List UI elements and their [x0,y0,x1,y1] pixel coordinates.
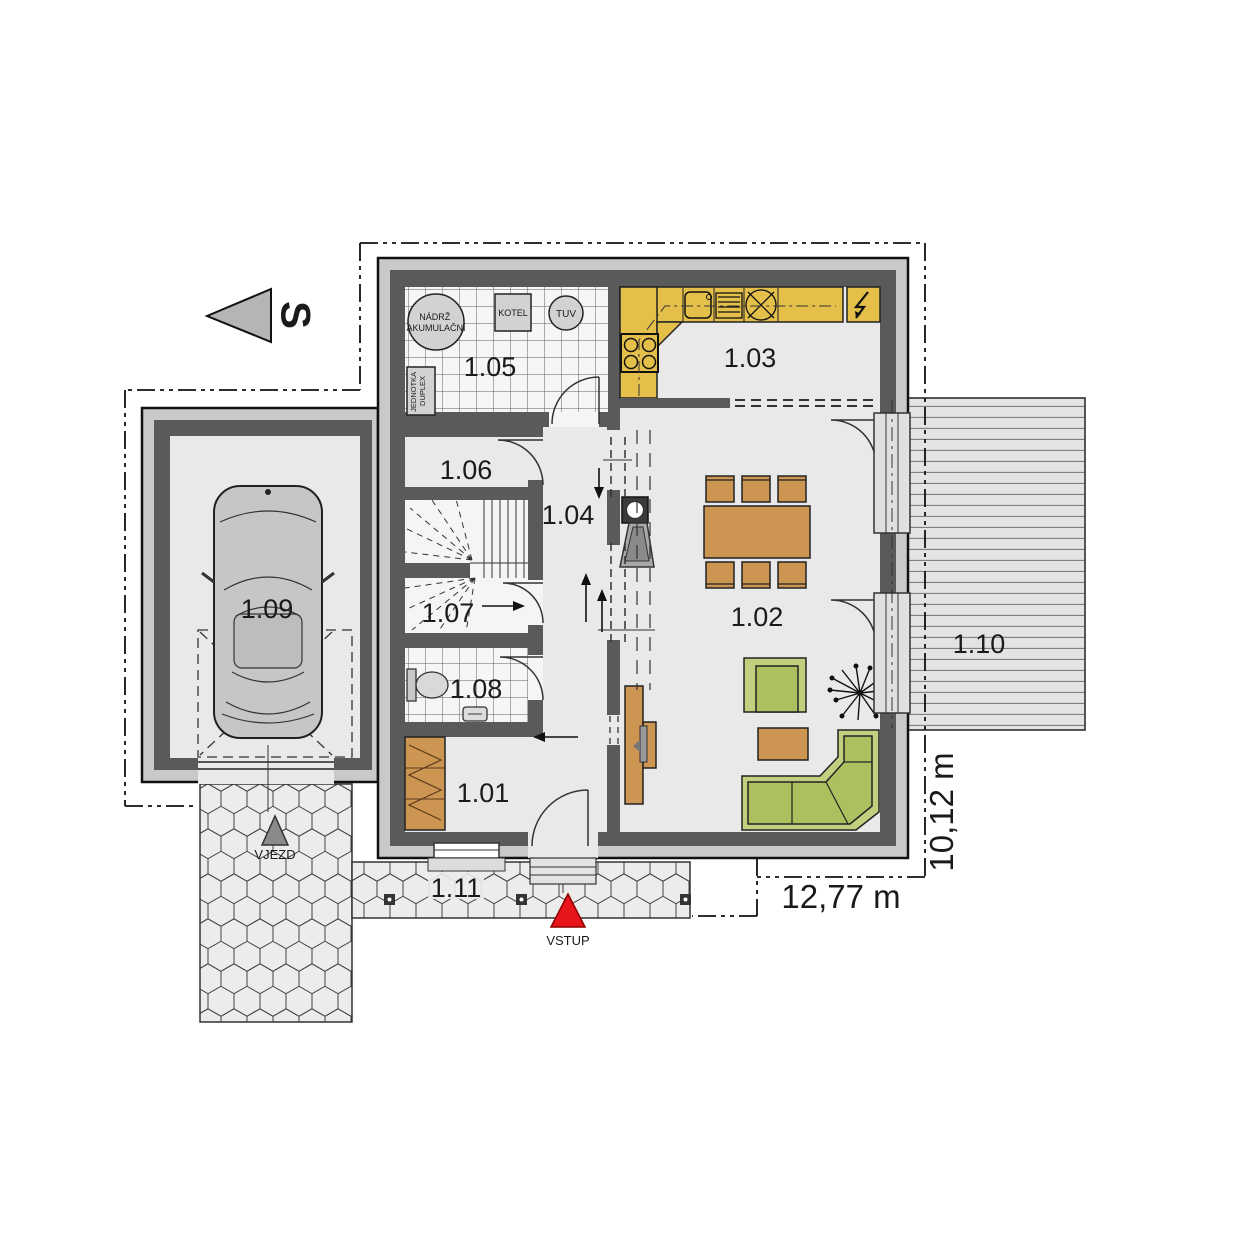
tank-label-line2: AKUMULAČNÍ [406,323,466,333]
room-label-1-05: 1.05 [464,352,517,382]
paved-walkway [352,862,691,918]
floor-plan-canvas: VJEZD [0,0,1240,1240]
armchair [744,658,806,712]
north-arrow: S [207,289,320,342]
dimension-height: 10,12 m [923,752,960,871]
terrace [906,398,1085,730]
room-label-1-03: 1.03 [724,343,777,373]
room-label-1-08: 1.08 [450,674,503,704]
room-label-1-10: 1.10 [953,629,1006,659]
floor-stairs [405,500,528,563]
vjezd-label: VJEZD [254,847,295,862]
duplex-label-line2: DUPLEX [418,376,427,406]
svg-text:JEDNOTKA DUPLEX: JEDNOTKA DUPLEX [409,370,427,412]
boiler-label: KOTEL [498,308,528,318]
wardrobe [405,737,445,830]
room-label-1-01: 1.01 [457,778,510,808]
dining-table [704,506,810,558]
floor-hall [543,427,607,737]
dimension-width: 12,77 m [781,878,900,915]
duplex-label-line1: JEDNOTKA [409,372,418,412]
tuv-label: TUV [556,309,576,320]
wc-sink [463,707,487,721]
room-label-1-09: 1.09 [241,594,294,624]
room-label-1-11: 1.11 [431,873,482,903]
kitchen-electrical-unit [847,287,880,322]
entry-window [428,843,505,871]
floor-plan-drawing: VJEZD [0,0,1240,1240]
room-label-1-04: 1.04 [542,500,595,530]
room-label-1-07: 1.07 [422,598,475,628]
accumulation-tank [408,294,464,350]
dining-set [704,476,810,588]
room-label-1-02: 1.02 [731,602,784,632]
vstup-label: VSTUP [546,933,589,948]
room-label-1-06: 1.06 [440,455,493,485]
tv-screen [640,726,647,762]
tank-label-line1: NÁDRŽ [419,312,451,322]
coffee-table [758,728,808,760]
north-label: S [273,301,320,329]
